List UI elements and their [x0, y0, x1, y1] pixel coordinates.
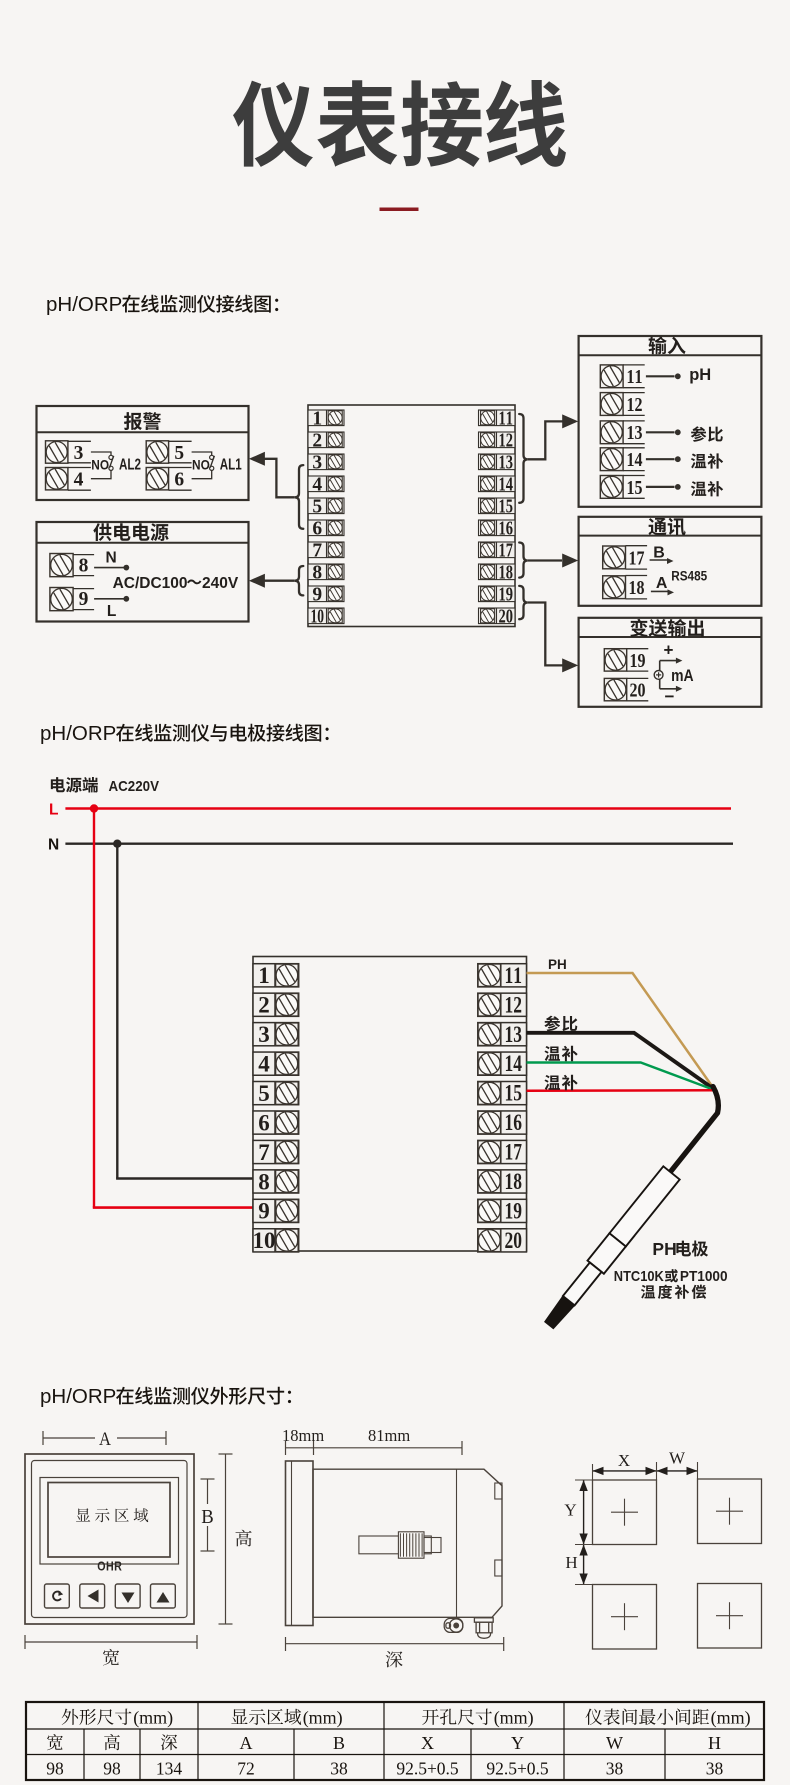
svg-text:16: 16 [505, 1110, 523, 1135]
svg-text:pH/ORP: pH/ORP [46, 293, 122, 316]
svg-text:pH/ORP: pH/ORP [40, 1385, 116, 1408]
svg-text:13: 13 [627, 422, 643, 444]
svg-text:13: 13 [499, 453, 514, 474]
svg-text:17: 17 [499, 541, 514, 562]
svg-text:5: 5 [312, 497, 322, 518]
svg-text:B: B [653, 545, 665, 562]
svg-text:81mm: 81mm [368, 1426, 410, 1445]
svg-text:20: 20 [630, 680, 646, 702]
svg-text:L: L [107, 603, 116, 620]
svg-text:38: 38 [706, 1758, 724, 1778]
svg-text:12: 12 [627, 394, 643, 416]
svg-text:98: 98 [46, 1758, 64, 1778]
svg-text:11: 11 [627, 366, 643, 388]
svg-text:RS485: RS485 [671, 568, 707, 583]
svg-text:92.5+0.5: 92.5+0.5 [396, 1758, 459, 1778]
svg-text:1: 1 [312, 409, 322, 430]
svg-text:(mm): (mm) [711, 1708, 751, 1729]
svg-text:18: 18 [505, 1169, 523, 1194]
svg-text:5: 5 [258, 1081, 270, 1106]
svg-text:AL2: AL2 [119, 457, 141, 474]
svg-text:92.5+0.5: 92.5+0.5 [486, 1758, 549, 1778]
svg-text:10: 10 [253, 1228, 276, 1253]
svg-text:12: 12 [505, 992, 523, 1017]
svg-text:98: 98 [103, 1758, 121, 1778]
svg-text:AL1: AL1 [220, 457, 242, 474]
svg-text:72: 72 [237, 1758, 255, 1778]
svg-text:4: 4 [258, 1051, 270, 1076]
svg-text:14: 14 [505, 1051, 523, 1076]
svg-text:12: 12 [499, 431, 514, 452]
svg-text:3: 3 [74, 443, 84, 464]
svg-text:B: B [333, 1733, 345, 1753]
svg-text:6: 6 [174, 470, 184, 491]
svg-text:(mm): (mm) [494, 1708, 534, 1729]
svg-text:X: X [421, 1733, 434, 1753]
svg-text:1: 1 [258, 963, 270, 988]
svg-text:9: 9 [258, 1199, 270, 1224]
svg-text:NO: NO [192, 458, 210, 473]
svg-text:L: L [49, 801, 58, 818]
svg-text:134: 134 [156, 1758, 183, 1778]
svg-text:AC220V: AC220V [109, 778, 160, 795]
svg-text:38: 38 [606, 1758, 624, 1778]
svg-text:W: W [606, 1733, 623, 1753]
svg-text:5: 5 [174, 443, 184, 464]
svg-text:mA: mA [671, 667, 694, 685]
svg-text:H: H [565, 1553, 577, 1572]
svg-text:N: N [106, 549, 117, 566]
svg-text:(mm): (mm) [303, 1708, 343, 1729]
svg-text:8: 8 [258, 1169, 270, 1194]
svg-text:2: 2 [312, 431, 322, 452]
svg-text:15: 15 [505, 1081, 523, 1106]
svg-text:11: 11 [505, 963, 523, 988]
svg-text:PH: PH [652, 1239, 676, 1259]
svg-text:W: W [669, 1449, 686, 1468]
svg-text:240V: 240V [202, 575, 239, 592]
svg-text:H: H [708, 1733, 721, 1753]
svg-text:17: 17 [629, 547, 645, 569]
svg-text:8: 8 [79, 556, 89, 577]
svg-text:AC/DC100: AC/DC100 [113, 575, 188, 592]
svg-text:2: 2 [258, 993, 270, 1018]
svg-text:19: 19 [499, 585, 514, 606]
svg-text:A: A [656, 575, 668, 592]
svg-text:38: 38 [330, 1758, 348, 1778]
svg-text:10: 10 [311, 607, 325, 628]
svg-text:6: 6 [312, 519, 322, 540]
svg-text:pH/ORP: pH/ORP [40, 722, 116, 745]
svg-text:18: 18 [499, 563, 514, 584]
svg-text:OHR: OHR [97, 1559, 122, 1574]
svg-text:17: 17 [505, 1140, 523, 1165]
svg-text:9: 9 [79, 589, 89, 610]
svg-text:B: B [201, 1506, 214, 1528]
svg-text:4: 4 [74, 470, 84, 491]
svg-text:NO: NO [91, 458, 109, 473]
svg-text:PT1000: PT1000 [680, 1268, 728, 1285]
svg-text:8: 8 [312, 563, 322, 584]
svg-text:20: 20 [505, 1228, 523, 1253]
svg-text:3: 3 [258, 1022, 270, 1047]
svg-text:PH: PH [548, 957, 567, 972]
svg-text:N: N [48, 837, 59, 854]
svg-text:3: 3 [312, 453, 322, 474]
svg-text:18: 18 [629, 577, 645, 599]
svg-text:Y: Y [564, 1501, 576, 1520]
svg-text:19: 19 [630, 650, 646, 672]
svg-text:A: A [99, 1429, 111, 1450]
svg-text:A: A [240, 1733, 253, 1753]
svg-text:NTC10K: NTC10K [614, 1268, 664, 1285]
svg-text:Y: Y [511, 1733, 524, 1753]
svg-text:6: 6 [258, 1110, 270, 1135]
svg-text:−: − [665, 687, 675, 706]
svg-text:7: 7 [258, 1140, 270, 1165]
svg-text:pH: pH [689, 366, 711, 384]
svg-text:15: 15 [627, 477, 643, 499]
svg-text:19: 19 [505, 1199, 523, 1224]
svg-text:11: 11 [499, 409, 514, 430]
svg-text:15: 15 [499, 497, 514, 518]
svg-text:20: 20 [499, 607, 514, 628]
svg-text:X: X [618, 1451, 630, 1470]
svg-text:16: 16 [499, 519, 514, 540]
svg-text:14: 14 [499, 475, 514, 496]
svg-text:4: 4 [312, 475, 322, 496]
svg-text:7: 7 [312, 541, 322, 562]
svg-text:9: 9 [312, 585, 322, 606]
svg-text:+: + [664, 641, 674, 660]
svg-text:18mm: 18mm [282, 1426, 324, 1445]
svg-text:(mm): (mm) [133, 1708, 173, 1729]
svg-text:13: 13 [505, 1022, 523, 1047]
svg-text:14: 14 [627, 449, 643, 471]
